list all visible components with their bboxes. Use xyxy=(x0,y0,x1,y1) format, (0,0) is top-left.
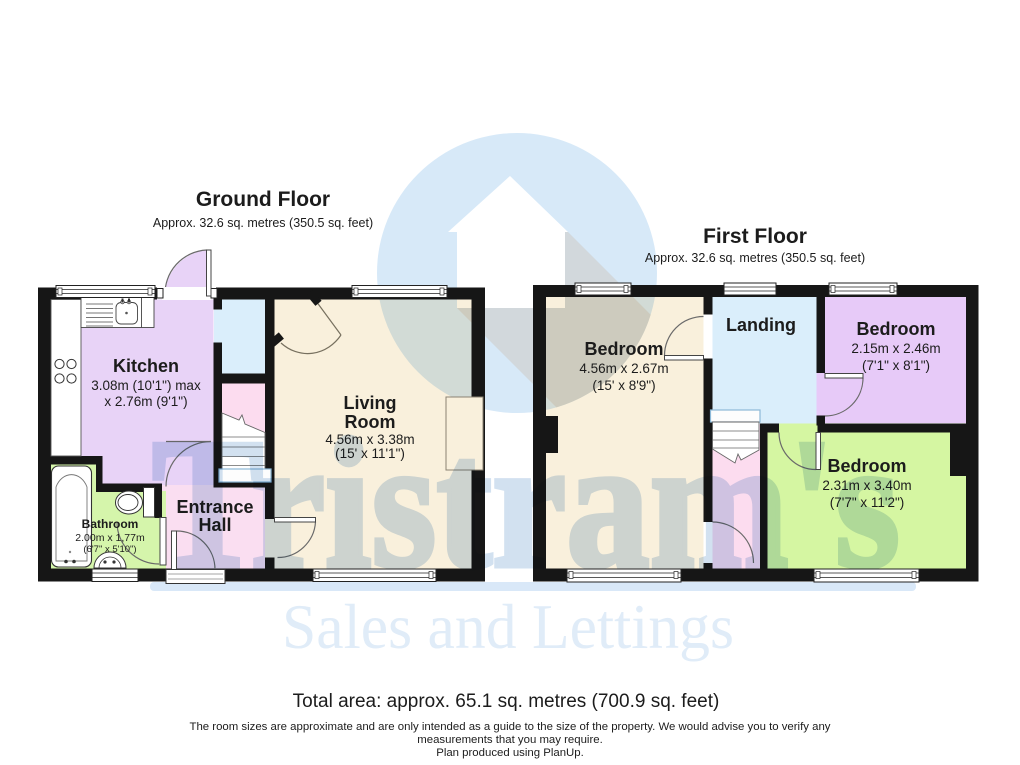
svg-text:4.56m x 2.67m: 4.56m x 2.67m xyxy=(579,361,668,376)
svg-text:Plan produced using PlanUp.: Plan produced using PlanUp. xyxy=(436,747,584,759)
svg-text:(15' x 8'9"): (15' x 8'9") xyxy=(592,378,655,393)
svg-text:First Floor: First Floor xyxy=(703,225,807,248)
svg-text:Sales and Lettings: Sales and Lettings xyxy=(282,591,734,662)
svg-text:Bedroom: Bedroom xyxy=(584,339,663,359)
svg-text:measurements that you may requ: measurements that you may require. xyxy=(417,734,603,746)
svg-text:2.15m x 2.46m: 2.15m x 2.46m xyxy=(851,341,940,356)
svg-text:Ground Floor: Ground Floor xyxy=(196,188,330,211)
svg-text:Kitchen: Kitchen xyxy=(113,356,179,376)
svg-text:3.08m (10'1") max: 3.08m (10'1") max xyxy=(91,378,201,393)
svg-text:Landing: Landing xyxy=(726,315,796,335)
svg-text:(6'7" x 5'10"): (6'7" x 5'10") xyxy=(83,544,136,555)
svg-text:Bathroom: Bathroom xyxy=(82,517,139,531)
svg-text:Bedroom: Bedroom xyxy=(856,319,935,339)
svg-text:Tristram's: Tristram's xyxy=(152,401,900,607)
svg-text:Approx. 32.6 sq. metres (350.5: Approx. 32.6 sq. metres (350.5 sq. feet) xyxy=(645,251,865,265)
svg-text:2.00m x 1,77m: 2.00m x 1,77m xyxy=(75,532,145,544)
svg-text:The room sizes are approximate: The room sizes are approximate and are o… xyxy=(190,721,831,733)
svg-text:(7'1" x 8'1"): (7'1" x 8'1") xyxy=(862,358,930,373)
svg-text:Approx. 32.6 sq. metres (350.5: Approx. 32.6 sq. metres (350.5 sq. feet) xyxy=(153,216,373,230)
svg-text:Total area: approx. 65.1 sq. m: Total area: approx. 65.1 sq. metres (700… xyxy=(293,691,720,712)
